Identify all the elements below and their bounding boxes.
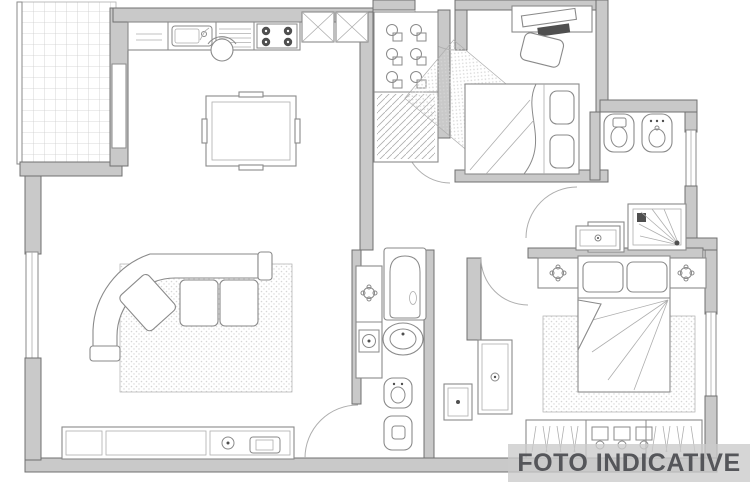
bedroom-2 (465, 6, 592, 174)
bathtub (384, 248, 426, 320)
dining-table (202, 92, 300, 170)
floor-plan-drawing (0, 0, 750, 482)
balcony (17, 2, 122, 176)
watermark-text: FOTO INDICATIVE (517, 449, 740, 478)
bidet (642, 114, 672, 152)
nightstand-left (538, 258, 578, 288)
double-bed (578, 256, 670, 392)
tall-cabinet (478, 340, 512, 414)
desk-chair (519, 32, 565, 69)
bathroom-2 (356, 248, 426, 450)
bathroom2-door-arc (305, 405, 358, 458)
master-bedroom-door-arc (481, 258, 528, 305)
laundry-basin (444, 384, 472, 420)
single-bed (465, 84, 579, 174)
washing-machine-column (356, 266, 382, 378)
desk (512, 6, 592, 68)
nightstand-right (666, 258, 706, 288)
floor-plan-image: FOTO INDICATIVE (0, 0, 750, 482)
bidet-2 (384, 378, 412, 408)
pedestal-sink (383, 323, 423, 355)
master-bedroom (526, 256, 706, 458)
tv-sideboard (62, 427, 294, 459)
toilet-2 (384, 416, 412, 450)
shower (628, 204, 686, 250)
balcony-tiled-floor (22, 2, 116, 164)
balcony-bottom-wall (20, 162, 122, 176)
living-room (62, 252, 294, 459)
bathroom1-door-arc (526, 187, 577, 238)
kitchen (128, 12, 368, 170)
dresser (576, 226, 620, 250)
watermark-band: FOTO INDICATIVE (508, 444, 750, 482)
balcony-door-window (112, 64, 126, 148)
balcony-railing (17, 2, 22, 164)
toilet (604, 114, 634, 152)
